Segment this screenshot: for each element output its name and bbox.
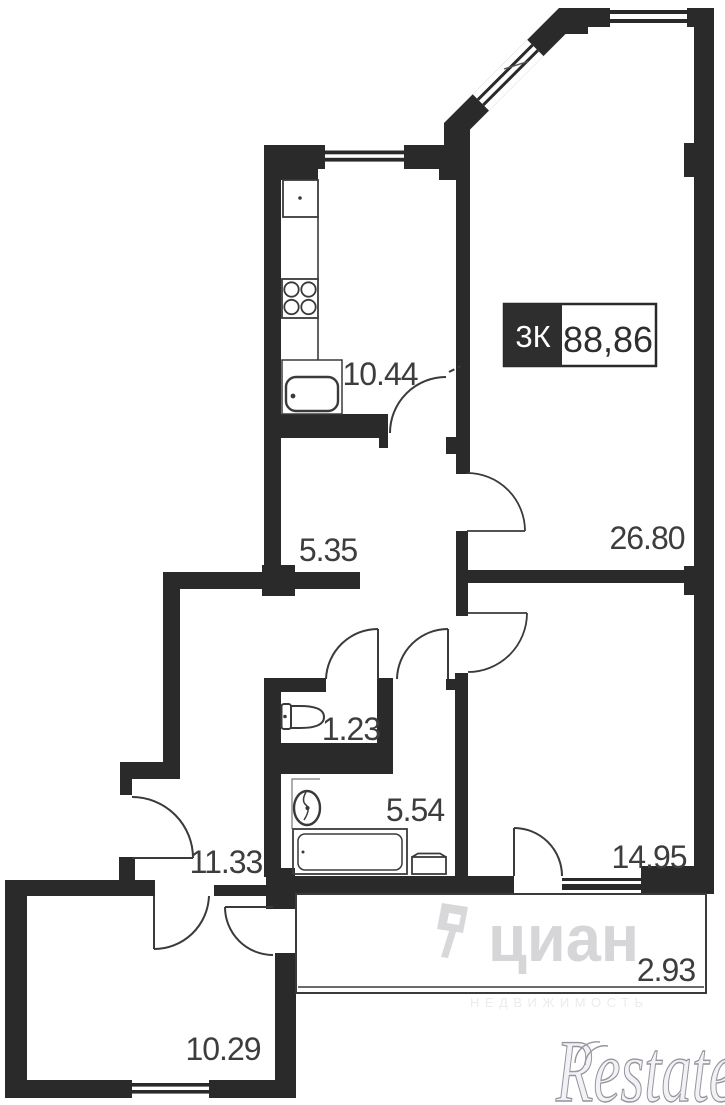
svg-text:14.95: 14.95 [611, 839, 686, 875]
svg-text:5.54: 5.54 [386, 792, 444, 828]
svg-text:циан: циан [488, 901, 639, 975]
svg-text:2.93: 2.93 [637, 952, 695, 988]
svg-text:Restate: Restate [555, 1023, 725, 1105]
svg-text:10.29: 10.29 [185, 1031, 260, 1067]
svg-text:5.35: 5.35 [299, 532, 357, 568]
svg-text:10.44: 10.44 [342, 356, 417, 392]
svg-text:11.33: 11.33 [190, 844, 263, 880]
svg-text:88,86: 88,86 [563, 319, 653, 360]
svg-text:3К: 3К [515, 319, 550, 354]
svg-text:1.23: 1.23 [322, 711, 380, 747]
svg-text:26.80: 26.80 [609, 520, 684, 556]
svg-text:НЕДВИЖИМОСТЬ: НЕДВИЖИМОСТЬ [470, 995, 649, 1010]
